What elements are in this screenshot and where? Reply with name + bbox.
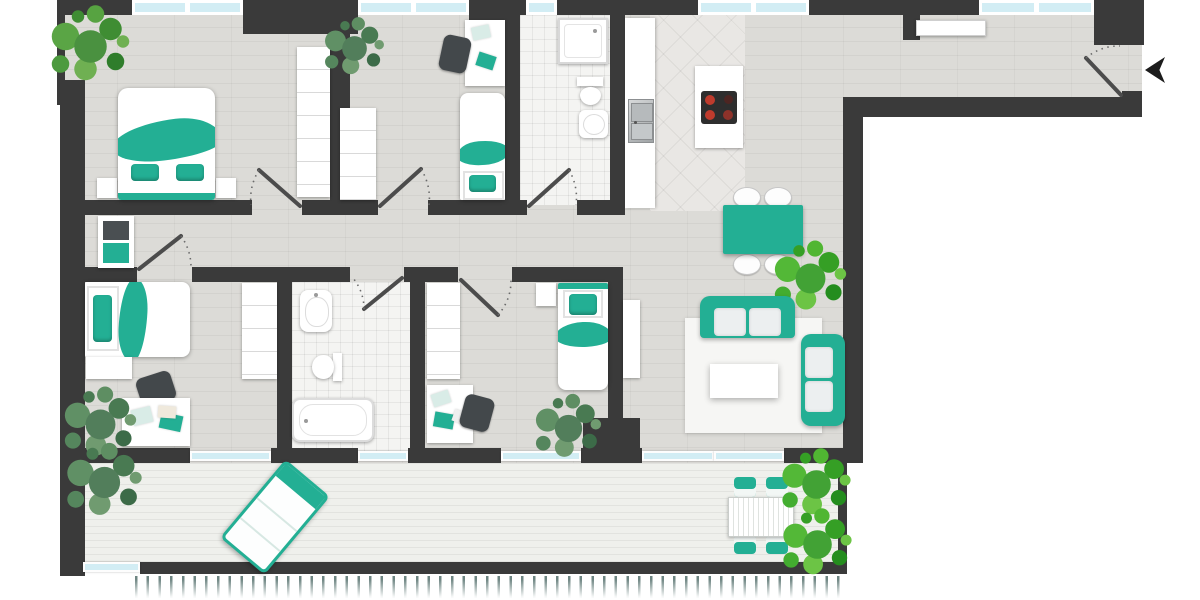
double-bed [118, 88, 215, 200]
bed-headboard [558, 283, 608, 289]
potted-plant [74, 30, 107, 63]
corridor-dresser [98, 216, 134, 268]
potted-plant [555, 415, 582, 442]
burner [705, 110, 715, 120]
bed-blanket [558, 321, 608, 349]
single-bed [460, 93, 505, 200]
wall-corridor-top-c [428, 200, 527, 215]
wall-bed4-right [608, 282, 623, 422]
bathtub [292, 398, 374, 442]
wall-top-right-corner [1094, 0, 1144, 45]
window-pane [134, 2, 186, 13]
nightstand [97, 178, 117, 198]
floor-plan [0, 0, 1200, 600]
outdoor-chair [766, 534, 788, 554]
window-bedroom-master [132, 0, 243, 15]
lounger-seam [256, 497, 297, 532]
balcony-door-living-1 [642, 451, 714, 461]
bed-pillow [93, 295, 112, 342]
shower-drain [593, 29, 597, 33]
bathtub-inner [299, 404, 367, 436]
desk [465, 20, 505, 86]
window-kitchen [698, 0, 809, 15]
balcony-door-bedroom-4 [501, 451, 581, 461]
potted-plant [796, 264, 826, 294]
burner [705, 95, 715, 105]
balcony-side-glass [83, 562, 140, 572]
bed-blanket [118, 113, 215, 166]
window-pane [528, 2, 555, 13]
entrance-arrow-icon [1145, 57, 1165, 83]
bed-pillow [176, 164, 204, 181]
wall-right-living [843, 97, 863, 448]
cooktop [701, 91, 737, 124]
single-bed [85, 282, 190, 357]
dining-chair [733, 254, 761, 275]
nightstand [536, 283, 556, 306]
wall-bath1-kitchen [610, 13, 625, 210]
sofa-cushion [714, 308, 746, 336]
outdoor-chair [734, 534, 756, 554]
balcony-door-bedroom-3 [190, 451, 271, 461]
railing-hatching [135, 576, 845, 598]
nightstand [216, 178, 236, 198]
bed-headboard [118, 193, 215, 200]
burner [723, 110, 733, 120]
potted-plant [802, 470, 831, 499]
outdoor-chair [766, 477, 788, 497]
wall-bottom-a [60, 448, 190, 463]
bed-blanket [460, 139, 505, 167]
potted-plant [803, 530, 832, 559]
balcony-door-living-2 [714, 451, 784, 461]
sofa-cushion [805, 347, 833, 378]
bed-pillow [569, 294, 597, 315]
lounger-seam [240, 517, 281, 552]
window-hallway [979, 0, 1094, 15]
shower [558, 18, 608, 64]
dresser-drawer [103, 243, 129, 263]
wall-bed3-bath2 [277, 282, 292, 452]
wall-corridor-bottom-a [60, 267, 137, 282]
floor-balcony [65, 463, 838, 563]
washbasin [300, 290, 332, 332]
wall-corridor-top-b [302, 200, 378, 215]
wall-left [60, 100, 85, 576]
sofa-three-seat [700, 296, 795, 338]
sofa-cushion [749, 308, 781, 336]
dresser-drawer [103, 221, 129, 240]
coffee-table [710, 364, 778, 398]
dining-table [723, 205, 803, 254]
sofa-two-seat [801, 334, 845, 426]
paper-sheet [475, 52, 496, 71]
paper-sheet [430, 390, 451, 408]
wall-balcony-bottom [140, 562, 847, 574]
basin-bowl [583, 114, 605, 135]
living-sideboard [623, 300, 640, 378]
bed-pillow [131, 164, 159, 181]
window-pane [700, 2, 752, 13]
potted-plant [86, 410, 116, 440]
window-bathroom-1 [526, 0, 557, 15]
wall-balcony-right [838, 463, 847, 566]
wall-bath2-bed4 [410, 282, 425, 452]
basin-bowl [305, 297, 329, 327]
wardrobe [297, 47, 330, 197]
low-shelf [86, 357, 132, 379]
basin-faucet [314, 293, 318, 297]
single-bed [558, 283, 608, 390]
wall-corridor-top-a [60, 200, 252, 215]
wardrobe [242, 283, 277, 379]
paper-sheet [471, 24, 491, 40]
desk [122, 398, 190, 446]
window-pane [360, 2, 412, 13]
wall-bottom-c [408, 448, 501, 463]
paper-sheet [158, 405, 177, 418]
window-pane [189, 2, 241, 13]
washbasin [579, 110, 608, 138]
potted-plant [342, 36, 367, 61]
paper-sheet [130, 406, 153, 426]
wardrobe [340, 108, 376, 200]
window-pane [981, 2, 1035, 13]
wall-corridor-bottom-b [192, 267, 350, 282]
wall-bottom-d [581, 448, 642, 463]
potted-plant [89, 467, 120, 498]
window-pane [755, 2, 807, 13]
bed-blanket [117, 282, 149, 357]
dining-chair [764, 254, 792, 275]
wall-hallway-bottom [843, 97, 1142, 117]
wall-corridor-bottom-d [512, 267, 623, 282]
bed-pillow [469, 175, 496, 192]
wall-bottom-e [784, 448, 863, 463]
window-bedroom-2 [358, 0, 469, 15]
hallway-sideboard [916, 20, 986, 36]
wall-step-block [583, 418, 640, 452]
sofa-cushion [805, 381, 833, 412]
wall-bed2-bath1 [505, 13, 520, 213]
wardrobe [427, 283, 460, 379]
bathtub-drain [304, 419, 308, 423]
outdoor-chair [734, 477, 756, 497]
window-pane [1038, 2, 1092, 13]
wall-corridor-top-d [577, 200, 625, 215]
window-pane [415, 2, 467, 13]
balcony-window-bathroom-2 [358, 451, 408, 461]
wall-corridor-bottom-c [404, 267, 458, 282]
burner [724, 95, 733, 104]
outdoor-table [728, 497, 794, 537]
